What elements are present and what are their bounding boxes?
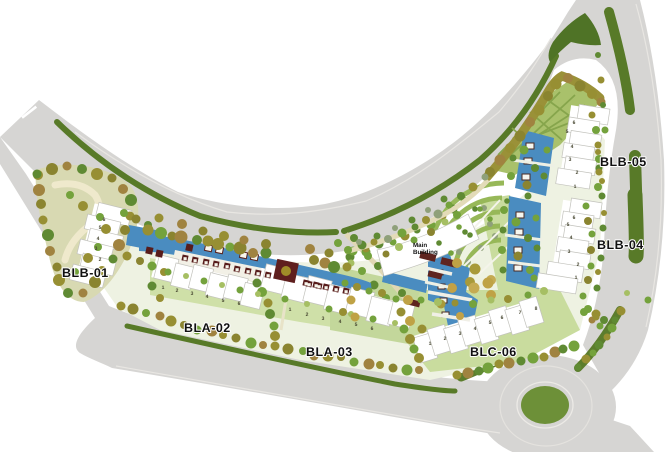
svg-text:1: 1 <box>574 184 577 190</box>
svg-text:2: 2 <box>176 288 179 294</box>
svg-text:4: 4 <box>97 236 100 242</box>
svg-text:2: 2 <box>306 312 309 318</box>
svg-text:3: 3 <box>459 331 462 337</box>
svg-text:3: 3 <box>568 249 571 255</box>
svg-text:BLA-02: BLA-02 <box>184 321 231 335</box>
svg-text:6: 6 <box>103 217 106 223</box>
svg-text:BLA-03: BLA-03 <box>306 345 353 359</box>
svg-text:2: 2 <box>577 262 580 268</box>
svg-text:5: 5 <box>355 322 358 328</box>
svg-text:3: 3 <box>569 157 572 163</box>
svg-text:1: 1 <box>289 307 292 313</box>
svg-text:1: 1 <box>575 275 578 281</box>
svg-text:4: 4 <box>571 144 574 150</box>
svg-text:1: 1 <box>162 285 165 291</box>
svg-text:5: 5 <box>99 225 102 231</box>
svg-text:7: 7 <box>519 310 522 316</box>
svg-text:6: 6 <box>573 120 576 126</box>
svg-text:Main: Main <box>413 242 427 249</box>
svg-text:5: 5 <box>222 298 225 304</box>
svg-text:BLB-04: BLB-04 <box>597 238 644 252</box>
svg-text:2: 2 <box>444 336 447 342</box>
svg-text:5: 5 <box>489 320 492 326</box>
svg-text:4: 4 <box>474 326 477 332</box>
svg-text:3: 3 <box>322 316 325 322</box>
svg-text:5: 5 <box>566 129 569 135</box>
svg-text:8: 8 <box>535 306 538 312</box>
svg-text:3: 3 <box>191 291 194 297</box>
svg-text:4: 4 <box>206 294 209 300</box>
svg-text:BLB-01: BLB-01 <box>62 266 109 280</box>
svg-text:BLC-06: BLC-06 <box>470 345 517 359</box>
svg-text:2: 2 <box>99 257 102 263</box>
svg-text:Building: Building <box>413 249 438 256</box>
svg-text:BLB-05: BLB-05 <box>600 155 647 169</box>
svg-text:4: 4 <box>570 235 573 241</box>
svg-text:4: 4 <box>339 319 342 325</box>
svg-text:6: 6 <box>371 326 374 332</box>
svg-text:2: 2 <box>576 170 579 176</box>
svg-text:6: 6 <box>238 301 241 307</box>
svg-text:3: 3 <box>95 246 98 252</box>
svg-text:1: 1 <box>429 341 432 347</box>
svg-text:6: 6 <box>573 215 576 221</box>
svg-text:5: 5 <box>567 222 570 228</box>
svg-text:6: 6 <box>501 315 504 321</box>
